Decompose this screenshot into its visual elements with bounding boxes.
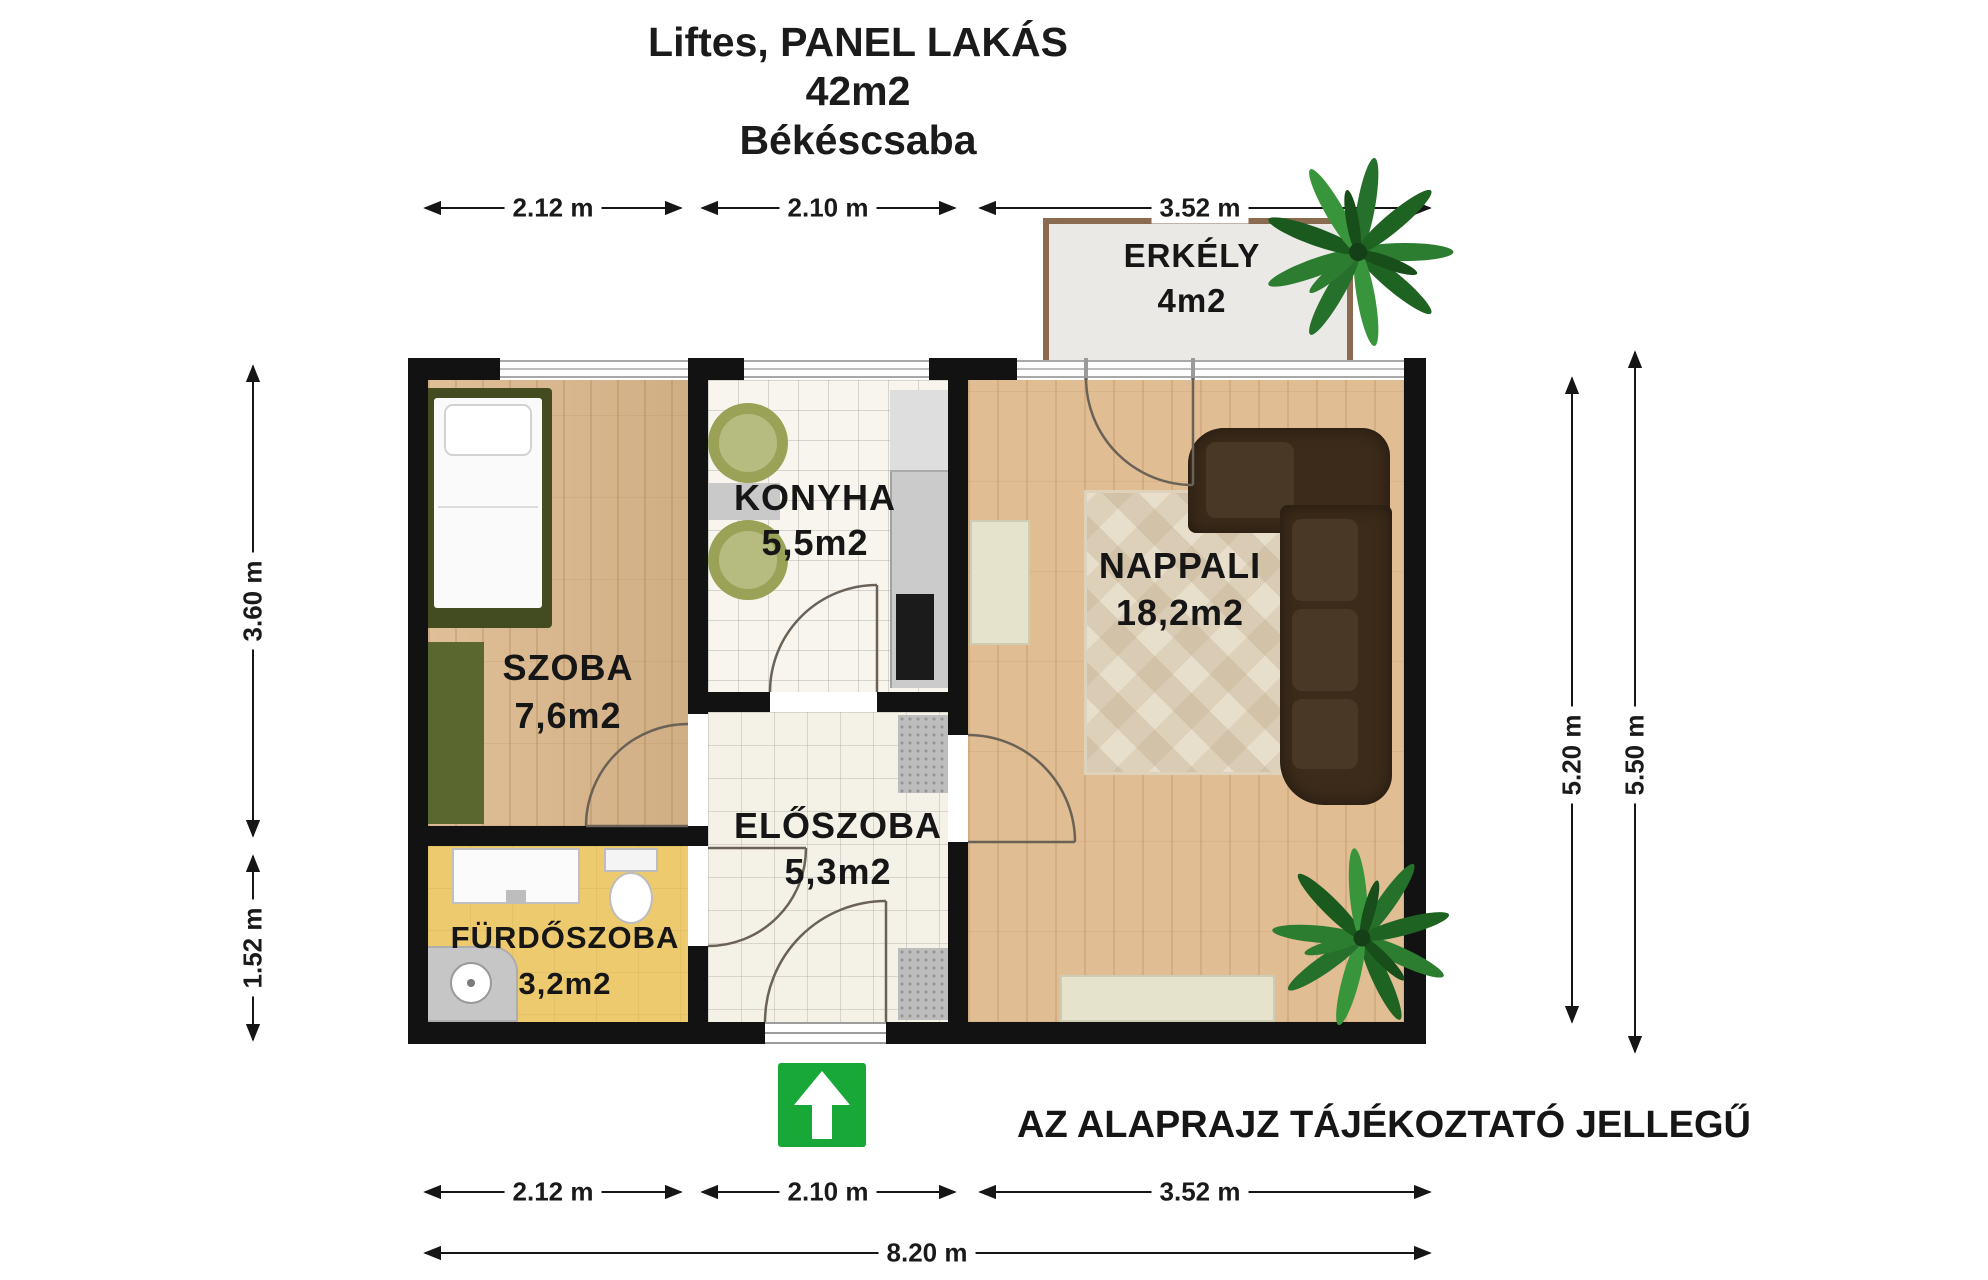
shower-dot	[467, 979, 475, 987]
dim-left-2: 1.52 m	[238, 900, 269, 997]
floor-plan-canvas: Liftes, PANEL LAKÁS 42m2 Békéscsaba	[0, 0, 1988, 1280]
room-label-nappali: NAPPALI	[1099, 545, 1261, 587]
stove-icon	[896, 594, 934, 680]
sideboard	[970, 520, 1030, 645]
room-label-konyha: KONYHA	[734, 477, 896, 519]
wall-right	[1404, 358, 1426, 1044]
sofa-icon	[1280, 505, 1392, 805]
wall-bottom	[886, 1022, 1426, 1044]
door-jamb	[1084, 358, 1088, 380]
wall-top	[929, 358, 1017, 380]
door-jamb	[1191, 358, 1195, 380]
sofa-cushion	[1206, 442, 1294, 518]
kitchen-chair-icon	[708, 403, 788, 483]
doormat	[898, 715, 948, 793]
wall-nappali-left	[948, 380, 968, 735]
sideboard	[1060, 975, 1275, 1022]
bed-icon	[424, 388, 552, 628]
room-area-furdoszoba: 3,2m2	[519, 966, 612, 1002]
sofa-cushion	[1292, 609, 1358, 691]
toilet-tank	[604, 848, 658, 872]
wall-top	[688, 358, 744, 380]
dim-bottom-3: 3.52 m	[1152, 1177, 1249, 1208]
dim-bottom-2: 2.10 m	[780, 1177, 877, 1208]
entrance-arrow-icon	[778, 1063, 866, 1147]
door-opening-nappali	[948, 735, 968, 842]
title-line-2: 42m2	[458, 67, 1258, 116]
room-label-eloszoba: ELŐSZOBA	[734, 805, 942, 847]
room-area-eloszoba: 5,3m2	[784, 851, 891, 893]
room-label-furdoszoba: FÜRDŐSZOBA	[451, 920, 680, 956]
window-szoba	[500, 360, 688, 378]
dim-total-width: 8.20 m	[879, 1238, 976, 1269]
front-door-threshold	[765, 1022, 886, 1044]
title-line-1: Liftes, PANEL LAKÁS	[458, 18, 1258, 67]
dim-right-1: 5.20 m	[1557, 707, 1588, 804]
wall-nappali-left	[948, 842, 968, 1022]
dim-right-2: 5.50 m	[1620, 707, 1651, 804]
room-area-szoba: 7,6m2	[514, 695, 621, 737]
bed-pillow	[444, 404, 532, 456]
wall-szoba-konyha	[688, 380, 708, 714]
window-balcony-door	[1017, 360, 1404, 378]
disclaimer-text: AZ ALAPRAJZ TÁJÉKOZTATÓ JELLEGŰ	[1002, 1104, 1766, 1147]
door-opening-konyha	[770, 692, 877, 712]
sofa-cushion	[1292, 519, 1358, 601]
room-area-konyha: 5,5m2	[761, 522, 868, 564]
dim-top-3: 3.52 m	[1152, 193, 1249, 224]
window-konyha	[744, 360, 929, 378]
room-label-erkely: ERKÉLY	[1124, 237, 1261, 275]
faucet-icon	[506, 890, 526, 904]
room-label-szoba: SZOBA	[503, 647, 634, 689]
room-area-erkely: 4m2	[1157, 282, 1226, 320]
page-title: Liftes, PANEL LAKÁS 42m2 Békéscsaba	[458, 18, 1258, 165]
wall-bottom	[408, 1022, 765, 1044]
door-opening-szoba	[688, 714, 708, 826]
wall-furdoszoba-eloszoba	[688, 946, 708, 1022]
doormat	[898, 948, 948, 1020]
up-arrow-icon	[778, 1063, 866, 1147]
room-area-nappali: 18,2m2	[1116, 592, 1244, 634]
sofa-cushion	[1292, 699, 1358, 769]
wardrobe-rug	[428, 642, 484, 824]
dim-left-1: 3.60 m	[238, 553, 269, 650]
toilet-icon	[609, 872, 653, 924]
door-opening-furdoszoba	[688, 846, 708, 946]
dim-top-1: 2.12 m	[505, 193, 602, 224]
wall-szoba-furdoszoba	[428, 826, 708, 846]
dim-top-2: 2.10 m	[780, 193, 877, 224]
wall-konyha-eloszoba	[708, 692, 770, 712]
title-line-3: Békéscsaba	[458, 116, 1258, 165]
bed-blanket-line	[438, 506, 538, 508]
fridge-icon	[890, 390, 948, 472]
dim-bottom-1: 2.12 m	[505, 1177, 602, 1208]
wall-left	[408, 358, 428, 1044]
